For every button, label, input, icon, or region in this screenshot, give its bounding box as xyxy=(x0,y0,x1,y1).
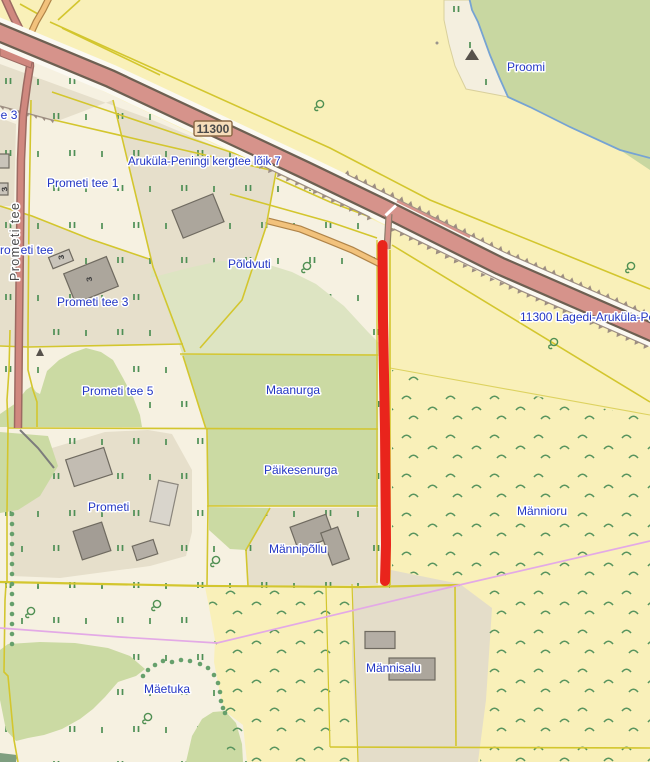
svg-text:Prometi tee 1: Prometi tee 1 xyxy=(47,176,119,190)
svg-text:11300 Lagedi-Aruküla-Pen: 11300 Lagedi-Aruküla-Pen xyxy=(520,310,650,324)
svg-text:Proomi: Proomi xyxy=(507,60,545,74)
svg-text:Aruküla-Peningi kergtee lõik 7: Aruküla-Peningi kergtee lõik 7 xyxy=(128,156,281,168)
svg-text:Männipõllu: Männipõllu xyxy=(269,542,327,556)
svg-text:Põldvuti: Põldvuti xyxy=(228,257,271,271)
svg-text:11300: 11300 xyxy=(197,122,230,136)
svg-text:Prometi tee 3: Prometi tee 3 xyxy=(57,295,129,309)
svg-text:Männioru: Männioru xyxy=(517,504,567,518)
svg-text:Päikesenurga: Päikesenurga xyxy=(264,463,338,477)
svg-text:Prometi tee 3: Prometi tee 3 xyxy=(0,108,18,122)
svg-text:Prometi tee 5: Prometi tee 5 xyxy=(82,384,154,398)
svg-text:Maanurga: Maanurga xyxy=(266,383,320,397)
svg-text:Prometi: Prometi xyxy=(88,500,129,514)
svg-text:Männisalu: Männisalu xyxy=(366,661,421,675)
svg-text:Mäetuka: Mäetuka xyxy=(144,682,190,696)
svg-text:Prometi tee: Prometi tee xyxy=(8,202,22,281)
